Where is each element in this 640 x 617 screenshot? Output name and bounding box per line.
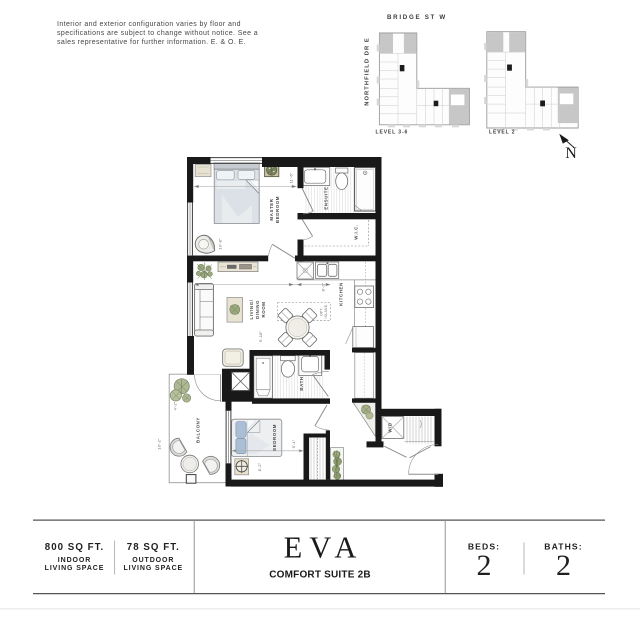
svg-text:8'-2": 8'-2" (321, 282, 326, 291)
svg-text:ENSUITE: ENSUITE (324, 186, 329, 209)
svg-text:KITCHEN: KITCHEN (339, 282, 344, 306)
svg-text:78 SQ FT.: 78 SQ FT. (127, 542, 180, 553)
svg-text:specifications are subject to: specifications are subject to change wit… (57, 30, 258, 37)
svg-text:INDOOR: INDOOR (58, 557, 91, 564)
svg-text:2: 2 (477, 549, 492, 582)
svg-text:OUTDOOR: OUTDOOR (132, 557, 174, 564)
svg-text:LEVEL 2: LEVEL 2 (489, 129, 516, 135)
svg-text:sales representative for furth: sales representative for further informa… (57, 39, 246, 46)
svg-text:LIVING SPACE: LIVING SPACE (123, 565, 183, 572)
svg-text:COMFORT SUITE 2B: COMFORT SUITE 2B (269, 570, 371, 581)
svg-text:5'-10": 5'-10" (258, 331, 263, 343)
svg-text:BEDROOM: BEDROOM (275, 196, 280, 223)
svg-text:DINING: DINING (255, 300, 260, 319)
svg-text:BEDROOM: BEDROOM (272, 424, 277, 451)
svg-text:W/D: W/D (388, 422, 393, 432)
svg-text:MASTER: MASTER (269, 198, 274, 220)
svg-text:ROOM: ROOM (261, 301, 266, 317)
svg-text:BALCONY: BALCONY (196, 417, 201, 443)
svg-text:ISLAND: ISLAND (324, 304, 328, 318)
svg-text:10'-8": 10'-8" (218, 238, 223, 250)
svg-text:4'-2": 4'-2" (173, 401, 178, 410)
svg-text:N: N (565, 145, 577, 162)
svg-text:9'-4": 9'-4" (291, 439, 296, 448)
svg-text:LIVING/: LIVING/ (249, 299, 254, 319)
svg-text:800 SQ FT.: 800 SQ FT. (45, 542, 105, 553)
svg-text:BRIDGE ST W: BRIDGE ST W (387, 14, 447, 21)
svg-text:8'-2": 8'-2" (257, 462, 262, 471)
svg-text:2: 2 (556, 549, 571, 582)
svg-text:Interior and exterior configur: Interior and exterior configuration vari… (57, 21, 241, 28)
svg-text:OPT.: OPT. (319, 307, 323, 316)
svg-text:BATH: BATH (299, 376, 304, 390)
svg-text:EVA: EVA (284, 531, 364, 565)
svg-text:11'-6": 11'-6" (288, 172, 293, 183)
svg-text:W.I.C.: W.I.C. (354, 224, 359, 240)
svg-text:LEVEL 3-6: LEVEL 3-6 (376, 129, 409, 135)
svg-text:LIVING SPACE: LIVING SPACE (45, 565, 105, 572)
svg-text:10'-2": 10'-2" (157, 438, 162, 450)
svg-text:NORTHFIELD DR E: NORTHFIELD DR E (365, 37, 371, 106)
